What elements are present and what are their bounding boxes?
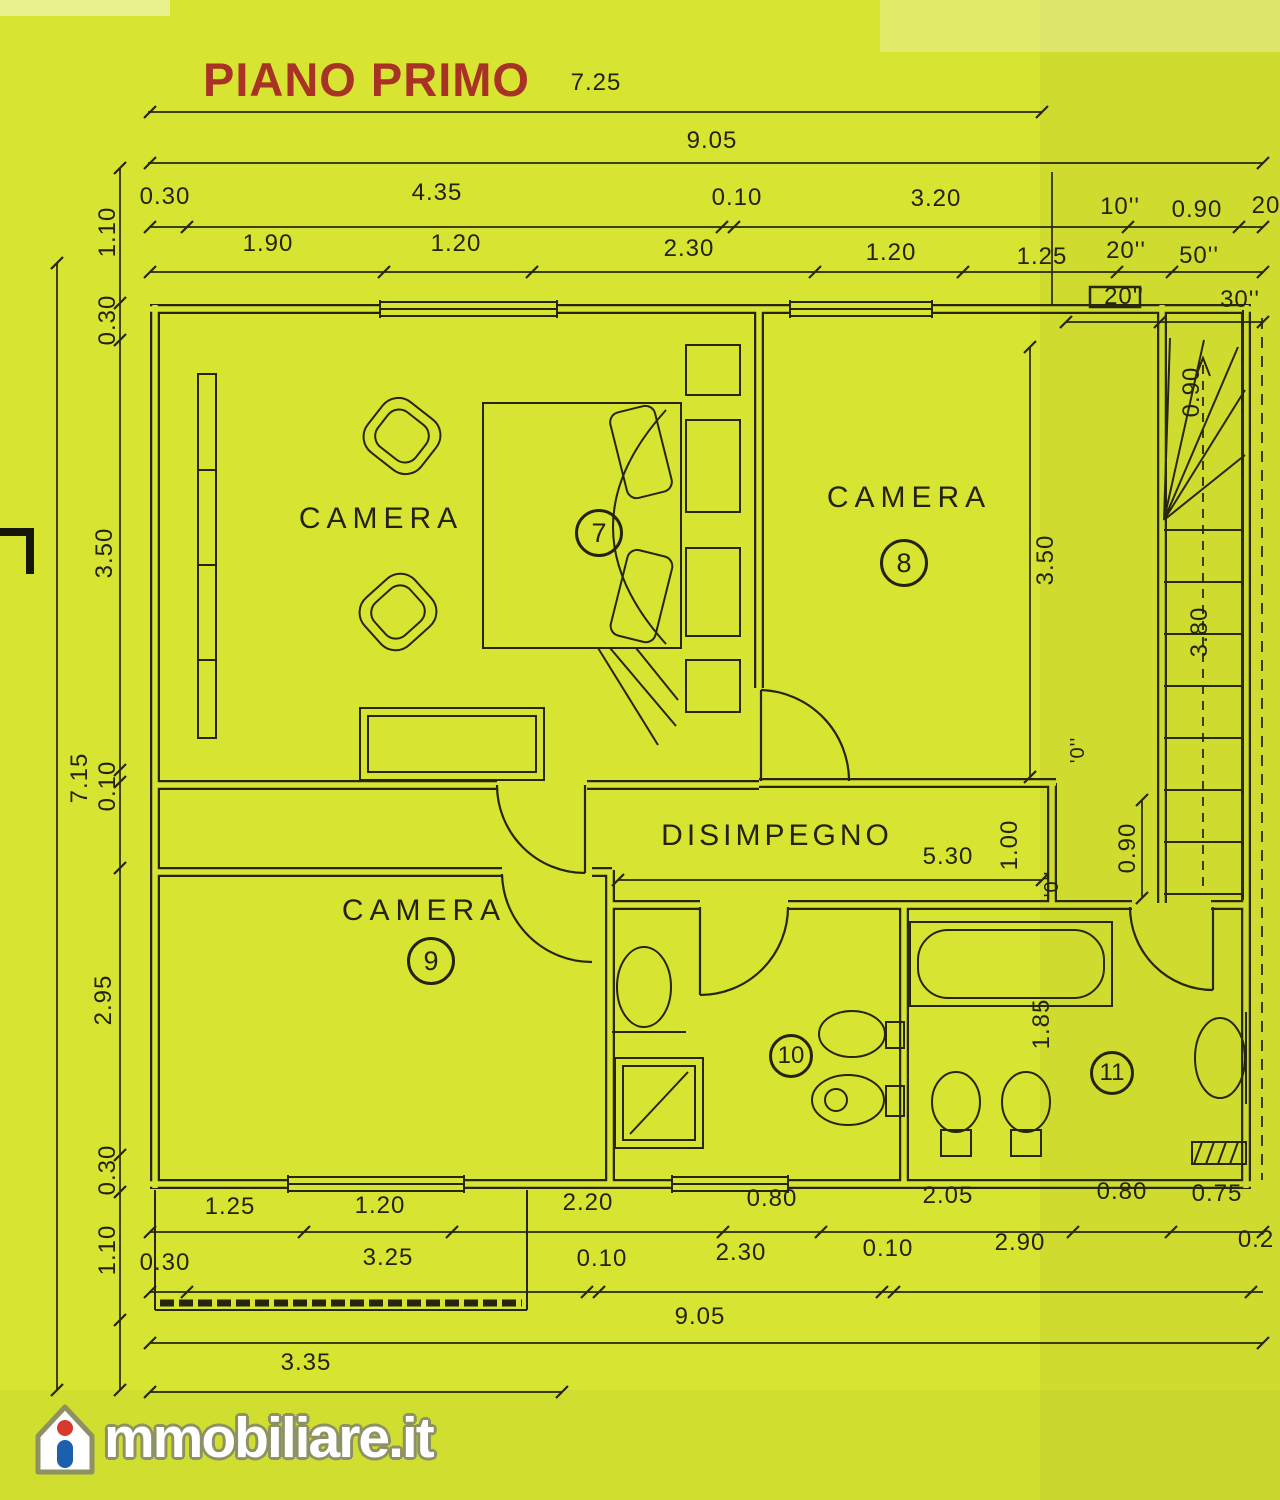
room-label-camera7: CAMERA [299,502,463,536]
immobiliare-logo: mmobiliare.it [26,1398,433,1478]
bathtub-icon [910,922,1112,1006]
dim-label: 0.2 [1238,1228,1274,1252]
dim-label: 3.80 [1188,607,1212,658]
dim-label: 2.30 [664,237,715,261]
room-number-10: 10 [769,1034,813,1078]
dim-label: 1.00 [998,820,1022,871]
dim-label: 0.30 [96,295,120,346]
dim-label: 7.25 [571,71,622,95]
dim-label: 0.10 [577,1247,628,1271]
dim-label: 3.50 [1034,535,1058,586]
room-number-11: 11 [1090,1051,1134,1095]
dim-label: 2.30 [716,1241,767,1265]
floorplan-scan: PIANO PRIMO 7.25 9.05 0.30 4.35 0.10 3.2… [0,0,1280,1500]
dim-label: 9.05 [687,129,738,153]
dim-label: 10'' [1100,195,1140,219]
bedroom7-furniture [198,345,740,780]
dim-label: 1.10 [96,1225,120,1276]
room-label-camera9: CAMERA [342,894,506,928]
dim-label: 3.35 [281,1351,332,1375]
dim-label: 20'' [1106,239,1146,263]
dim-label: 1.10 [96,207,120,258]
dim-label: 20'' [1104,285,1144,309]
dim-label: 2.05 [923,1184,974,1208]
shelf-icon [686,420,740,512]
dim-label: 3.20 [911,187,962,211]
level-mark: '0'' [1068,737,1088,764]
room-label-disimpegno: DISIMPEGNO [661,819,893,853]
level-mark: '0'' [1042,871,1062,898]
dim-label: 0.30 [96,1145,120,1196]
dresser-icon [360,708,544,780]
dim-label: 3.25 [363,1246,414,1270]
dim-label: 3.50 [93,528,117,579]
house-i-icon [26,1398,104,1478]
dim-label: 1.25 [205,1195,256,1219]
dim-label: 7.15 [68,753,92,804]
toilet-icon [932,1072,980,1132]
dim-label: 2.20 [563,1191,614,1215]
bathroom10-fixtures [612,947,904,1148]
shelf-icon [686,548,740,636]
dim-label: 1.20 [866,241,917,265]
dim-label: 0.90 [1116,823,1140,874]
dim-label: 0.30 [140,1251,191,1275]
room-number-7: 7 [575,509,623,557]
page-title: PIANO PRIMO [203,52,530,107]
shelf-icon [686,345,740,395]
dim-label: 20 [1252,194,1280,218]
dim-label: 0.10 [863,1237,914,1261]
dim-label: 9.05 [675,1305,726,1329]
dim-label: 5.30 [923,845,974,869]
room-number-9: 9 [407,937,455,985]
dim-label: 1.25 [1017,245,1068,269]
dim-label: 0.75 [1192,1182,1243,1206]
dim-label: 0.90 [1180,367,1204,418]
dim-label: 30'' [1220,288,1260,312]
dim-label: 0.10 [96,761,120,812]
dim-label: 1.90 [243,232,294,256]
dim-label: 0.80 [747,1187,798,1211]
armchair-icon [356,390,449,482]
dim-label: 1.20 [355,1194,406,1218]
armchair-icon [351,565,444,658]
dim-label: 0.80 [1097,1180,1148,1204]
bathroom11-fixtures [910,922,1246,1164]
bidet-icon [1002,1072,1050,1132]
dim-label: 50'' [1179,244,1219,268]
logo-text-tld: .it [388,1410,433,1467]
dim-label: 2.95 [92,975,116,1026]
dim-label: 0.10 [712,186,763,210]
dim-label: 1.85 [1030,999,1054,1050]
dim-label: 4.35 [412,181,463,205]
shelf-icon [686,660,740,712]
dim-label: 0.30 [140,185,191,209]
scan-mark [0,528,34,574]
sink-icon [1195,1018,1245,1098]
logo-text-main: mmobiliare [104,1410,388,1467]
sink-icon [617,947,671,1027]
dim-label: 0.90 [1172,198,1223,222]
room-number-8: 8 [880,539,928,587]
wardrobe-strip-icon [198,374,216,738]
dim-label: 1.20 [431,232,482,256]
bidet-icon [819,1011,885,1057]
dim-label: 2.90 [995,1231,1046,1255]
room-label-camera8: CAMERA [827,481,991,515]
